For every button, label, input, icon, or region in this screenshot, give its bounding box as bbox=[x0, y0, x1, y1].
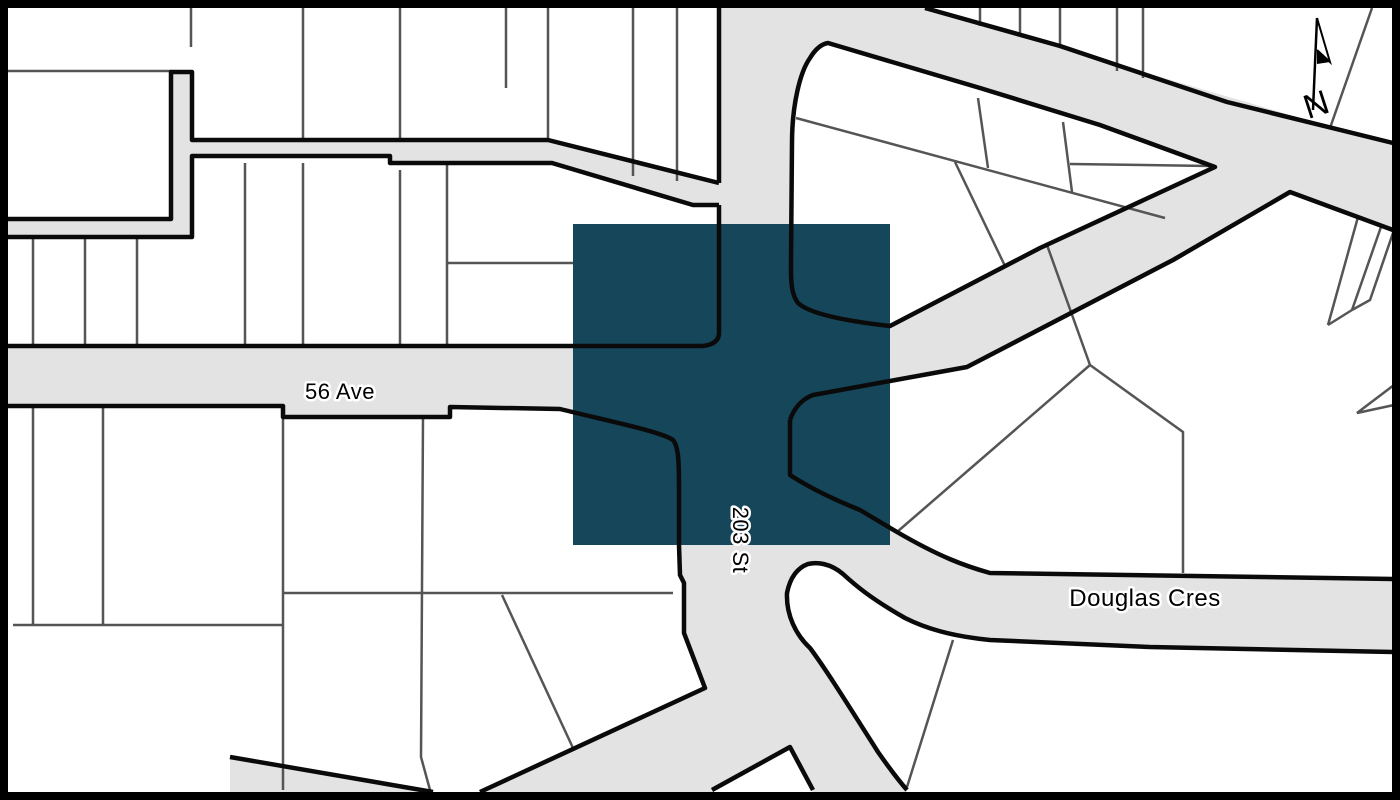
street-label-56-ave: 56 Ave bbox=[305, 379, 375, 404]
map-canvas: 56 Ave 203 St Douglas Cres N bbox=[0, 0, 1400, 800]
map-export-page: 56 Ave 203 St Douglas Cres N bbox=[0, 0, 1400, 800]
highlight-square bbox=[573, 224, 890, 545]
street-label-douglas-cres: Douglas Cres bbox=[1069, 585, 1220, 612]
road-fill-lane-east bbox=[192, 140, 719, 207]
road-fill-lane-west bbox=[0, 72, 192, 237]
street-label-203-st: 203 St bbox=[728, 507, 753, 574]
north-arrow-icon: N bbox=[1299, 18, 1334, 127]
